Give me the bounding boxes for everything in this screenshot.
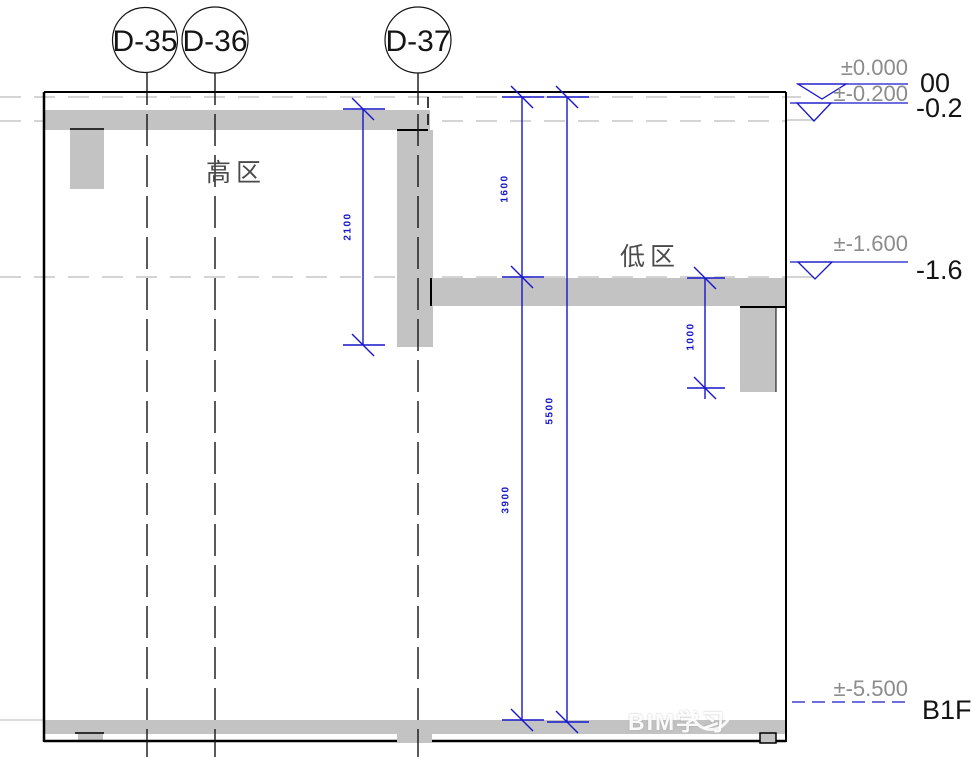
level-name-b1f: B1F xyxy=(922,695,971,726)
bottom-stub-d37 xyxy=(397,734,432,743)
watermark-logo-icon xyxy=(690,689,732,731)
section-linework xyxy=(0,0,971,757)
dimension-text-3900[interactable]: 3900 xyxy=(501,472,514,528)
left-column xyxy=(70,130,104,189)
zone-label-high[interactable]: 高区 xyxy=(206,153,266,189)
concrete-fills[interactable] xyxy=(45,110,786,743)
level-name-16: -1.6 xyxy=(916,255,963,286)
dimension-text-1600[interactable]: 1600 xyxy=(500,161,513,217)
grid-label-d37[interactable]: D-37 xyxy=(373,25,463,59)
level-name-02: -0.2 xyxy=(916,93,963,124)
section-view-canvas: D-35 D-36 D-37 高区 低区 2100 1600 5500 3900… xyxy=(0,0,971,757)
level-elevation-0000[interactable]: ±0.000 xyxy=(822,55,908,81)
grid-label-d36[interactable]: D-36 xyxy=(170,25,260,59)
bottom-stub-right xyxy=(760,733,776,743)
dimension-text-1000[interactable]: 1000 xyxy=(686,309,699,365)
lower-slab xyxy=(430,278,786,306)
dimension-text-5500[interactable]: 5500 xyxy=(545,383,558,439)
top-slab xyxy=(45,110,430,130)
right-column xyxy=(740,308,776,392)
level-elevation-0200[interactable]: ±-0.200 xyxy=(822,81,908,107)
d37-wall xyxy=(397,130,433,347)
level-elevation-1600[interactable]: ±-1.600 xyxy=(822,231,908,257)
zone-label-low[interactable]: 低区 xyxy=(620,237,680,273)
level-elevation-5500[interactable]: ±-5.500 xyxy=(822,676,908,702)
dimension-text-2100[interactable]: 2100 xyxy=(343,199,356,255)
grid-lines[interactable] xyxy=(147,73,418,757)
